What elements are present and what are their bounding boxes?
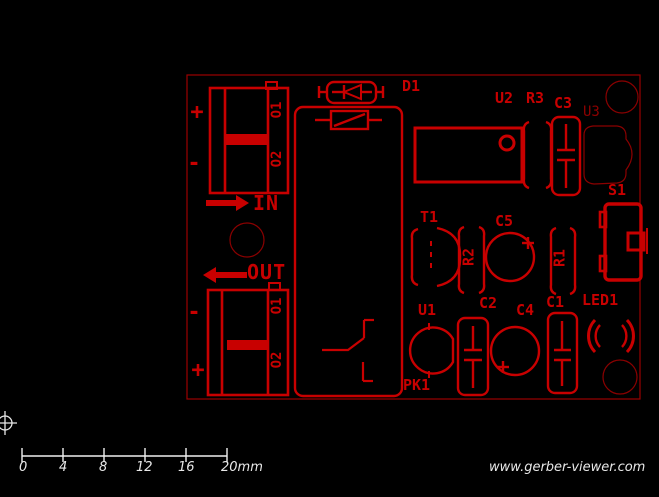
refdes-d1: D1: [402, 79, 420, 94]
connector-top-pin1-label: O1: [270, 102, 284, 119]
c4-outline: [491, 327, 539, 375]
t1-outline: [412, 228, 460, 286]
c1-outline: [548, 313, 577, 393]
relay-contact-symbol: [322, 320, 374, 381]
mounting-hole: [603, 360, 637, 394]
fuse-symbol: [315, 111, 382, 129]
connector-bottom-minus-sign: -: [187, 302, 200, 324]
refdes-r2: R2: [462, 248, 477, 266]
refdes-pk1: PK1: [403, 378, 430, 393]
connector-top-outline: [210, 82, 288, 193]
u1-outline: [410, 323, 453, 378]
ruler-label-12: 12: [136, 461, 153, 474]
refdes-r1: R1: [553, 249, 568, 267]
s1-outline: [600, 204, 647, 280]
refdes-c2: C2: [479, 296, 497, 311]
mounting-hole: [606, 81, 638, 113]
connector-bottom-plus-sign: +: [191, 360, 204, 382]
c3-outline: [552, 117, 580, 195]
u2-outline: [415, 128, 522, 182]
refdes-c1: C1: [546, 295, 564, 310]
board-outline: [187, 75, 640, 399]
relay-pk1-outline: [295, 107, 402, 396]
origin-crosshair-icon: [0, 411, 17, 435]
refdes-c3: C3: [554, 96, 572, 111]
refdes-c5: C5: [495, 214, 513, 229]
connector-top-pin2-label: O2: [270, 151, 284, 168]
connector-top-minus-sign: -: [187, 153, 200, 175]
port-label-in: IN: [253, 193, 279, 213]
u3-outline: [584, 126, 632, 184]
refdes-u3: U3: [583, 105, 600, 119]
mounting-hole: [230, 223, 264, 257]
ruler-label-8: 8: [99, 461, 107, 474]
out-arrow-icon: [203, 267, 247, 283]
ruler-label-0: 0: [19, 461, 27, 474]
in-arrow-icon: [206, 195, 249, 211]
port-label-out: OUT: [247, 262, 286, 282]
refdes-r3: R3: [526, 91, 544, 106]
gerber-viewer-canvas[interactable]: D1 U2 R3 C3 U3 S1 T1 C5 R2 R1 U1 C2 C4 C…: [0, 0, 659, 497]
led1-outline: [589, 320, 634, 352]
refdes-led1: LED1: [582, 293, 618, 308]
ruler-label-20mm: 20mm: [221, 461, 263, 474]
refdes-c4: C4: [516, 303, 534, 318]
refdes-u2: U2: [495, 91, 513, 106]
connector-bottom-pin2-label: O2: [270, 352, 284, 369]
diode-d1-symbol: [318, 82, 384, 103]
ruler-label-16: 16: [178, 461, 195, 474]
watermark-text: www.gerber-viewer.com: [489, 461, 645, 474]
scale-ruler: [22, 448, 227, 462]
c2-outline: [458, 318, 488, 395]
refdes-s1: S1: [608, 183, 626, 198]
refdes-u1: U1: [418, 303, 436, 318]
refdes-t1: T1: [420, 210, 438, 225]
r3-outline: [524, 122, 551, 188]
ruler-label-4: 4: [59, 461, 67, 474]
connector-top-plus-sign: +: [190, 102, 203, 124]
connector-bottom-pin1-label: O1: [270, 298, 284, 315]
c5-outline: [486, 233, 534, 281]
